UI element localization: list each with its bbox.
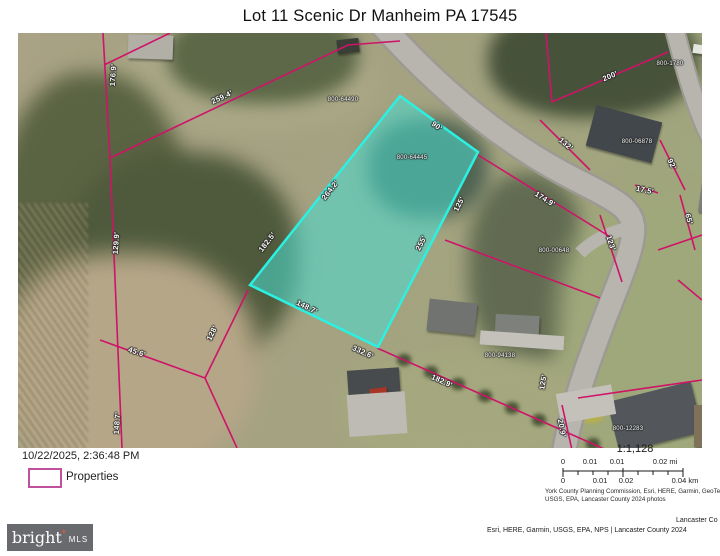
dimension-label: 90' [430,119,444,133]
scale-mi-tick: 0 [561,457,565,466]
aerial-map[interactable]: 176.9'259.4'129.9'182.5'264.2'90'125'255… [18,33,702,448]
map-attribution-line2: USGS, EPA, Lancaster County 2024 photos [545,496,666,503]
logo-star-icon: ✶ [61,528,67,536]
bright-mls-logo: bright✶MLS [7,524,93,551]
basemap-credit-line1: Lancaster Co [676,517,718,524]
dimension-label: 182.5' [257,230,278,253]
map-labels: 176.9'259.4'129.9'182.5'264.2'90'125'255… [18,33,702,448]
dimension-label: 129.9' [111,232,122,255]
parcel-id-label: 800-12283 [613,426,644,432]
dimension-label: 45.6' [127,345,147,359]
dimension-label: 17.5' [635,184,654,197]
dimension-label: 132' [557,136,575,153]
scale-mi-tick: 0.01 [583,457,598,466]
parcel-id-label: 800-94138 [485,353,516,359]
scale-km-tick: 0.04 km [672,476,699,485]
scale-mi-tick: 0.01 [610,457,625,466]
dimension-label: 123' [604,234,617,252]
dimension-label: 174.9' [533,189,557,208]
dimension-label: 182.9' [430,372,454,389]
parcel-id-label: 800-64445 [397,155,428,161]
dimension-label: 255' [413,234,428,252]
dimension-label: 332.6' [351,343,375,360]
dimension-label: 259.4' [210,88,234,106]
legend-properties-label: Properties [66,471,118,483]
parcel-id-label: 800-06878 [622,139,653,145]
dimension-label: 20.9' [556,418,569,437]
dimension-label: 92' [665,157,678,171]
export-timestamp: 10/22/2025, 2:36:48 PM [22,450,139,462]
parcel-id-label: 800-00648 [539,248,570,254]
page-title: Lot 11 Scenic Dr Manheim PA 17545 [0,7,720,26]
dimension-label: 200' [601,69,619,83]
dimension-label: 65' [683,213,695,226]
map-attribution-line1: York County Planning Commission, Esri, H… [545,488,720,495]
dimension-label: 125' [451,195,466,213]
logo-sub-wordmark: MLS [69,535,88,544]
page-root: Lot 11 Scenic Dr Manheim PA 17545 [0,0,720,556]
logo-wordmark: bright [12,530,62,546]
dimension-label: 125' [537,374,549,391]
dimension-label: 176.9' [108,64,119,87]
scale-km-tick: 0 [561,476,565,485]
dimension-label: 128' [205,324,220,342]
scale-km-tick: 0.01 [593,476,608,485]
parcel-id-label: 800-1780 [657,61,684,67]
dimension-label: 264.2' [320,178,341,201]
scale-mi-tick: 0.02 mi [653,457,678,466]
legend-properties-swatch [28,468,62,488]
scale-km-tick: 0.02 [619,476,634,485]
dimension-label: 148.7' [295,298,319,316]
basemap-credit-line2: Esri, HERE, Garmin, USGS, EPA, NPS | Lan… [487,527,687,534]
dimension-label: 148.7' [112,412,123,435]
parcel-id-label: 800-64490 [328,97,359,103]
